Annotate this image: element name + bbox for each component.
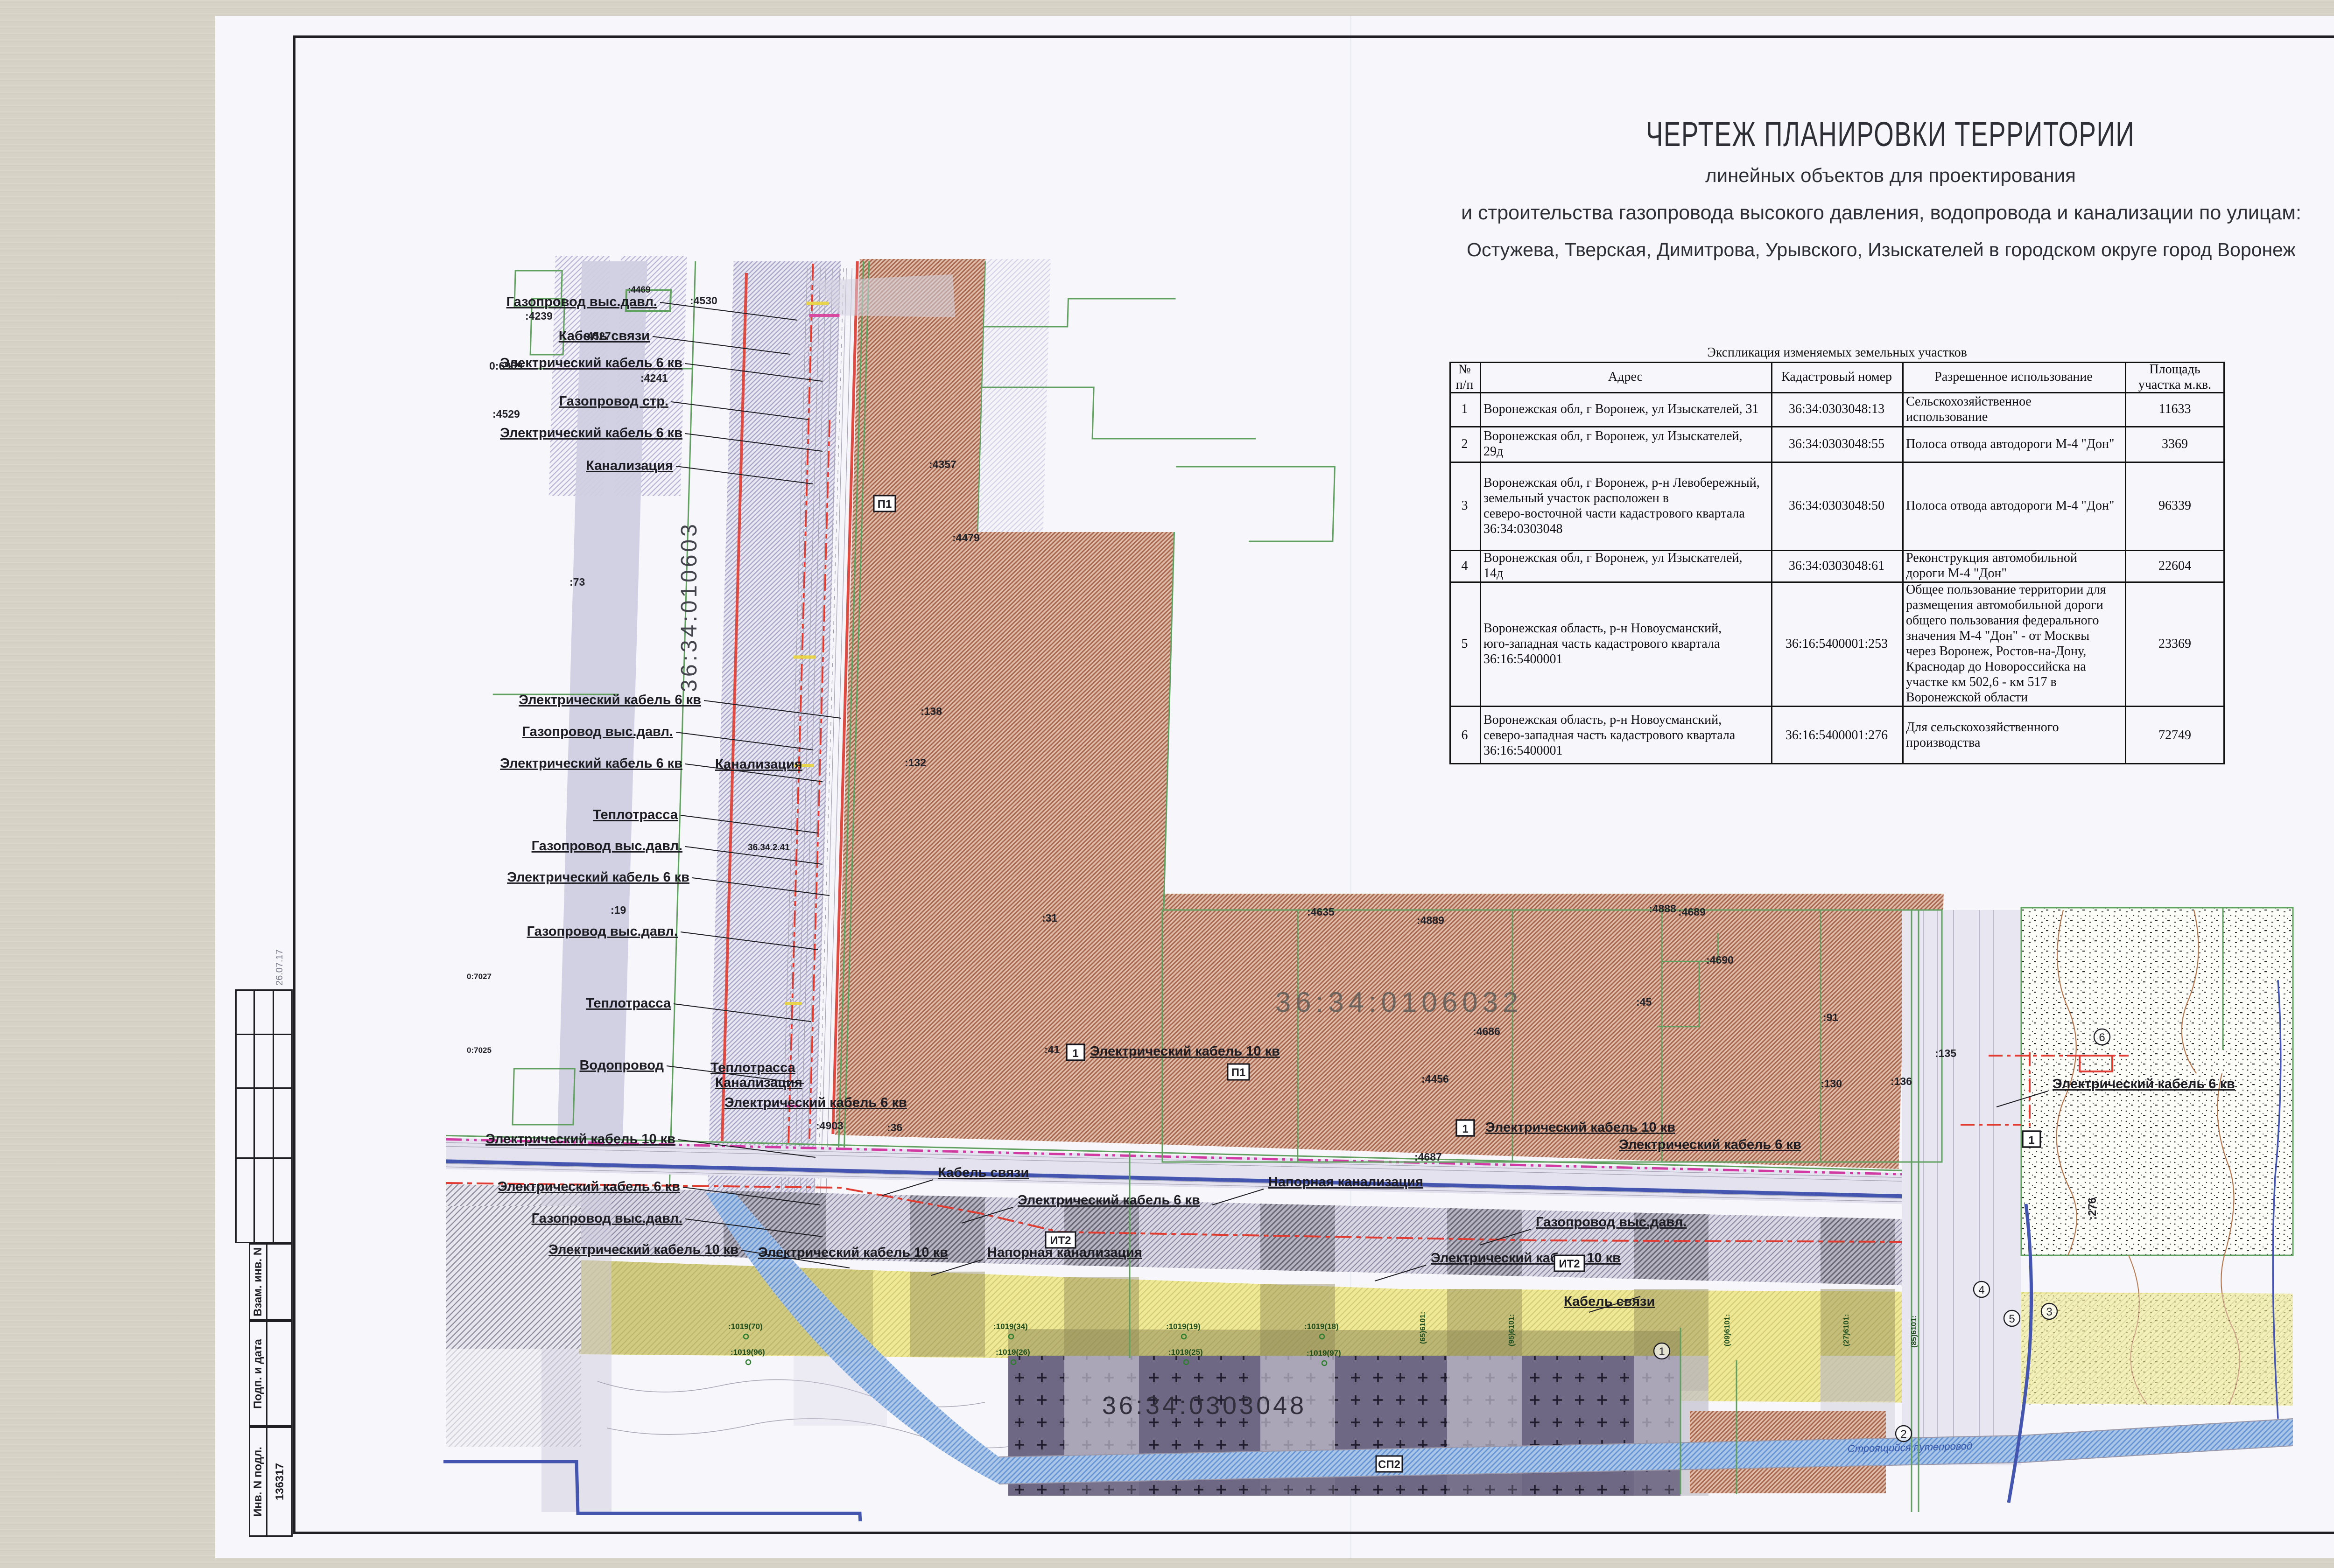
svg-text:0:7025: 0:7025 bbox=[467, 1046, 492, 1055]
svg-text::4686: :4686 bbox=[1473, 1025, 1500, 1037]
svg-text::4888: :4888 bbox=[1649, 903, 1676, 915]
svg-text:Электрический кабель 10 кв: Электрический кабель 10 кв bbox=[758, 1245, 948, 1260]
svg-text::73: :73 bbox=[569, 576, 585, 588]
svg-text:Теплотрасса: Теплотрасса bbox=[593, 807, 678, 822]
svg-text::4687: :4687 bbox=[1414, 1151, 1442, 1163]
svg-text:(65)6101:: (65)6101: bbox=[1419, 1312, 1427, 1344]
svg-text::4903: :4903 bbox=[816, 1120, 844, 1132]
svg-text:Теплотрасса: Теплотрасса bbox=[710, 1060, 796, 1075]
svg-text:Газопровод выс.давл.: Газопровод выс.давл. bbox=[532, 839, 682, 854]
svg-text:0:7027: 0:7027 bbox=[467, 972, 492, 981]
svg-text::91: :91 bbox=[1823, 1011, 1838, 1023]
svg-text:2: 2 bbox=[1900, 1428, 1906, 1441]
svg-text:Электрический кабель 6 кв: Электрический кабель 6 кв bbox=[500, 756, 682, 771]
svg-text::31: :31 bbox=[1042, 912, 1057, 924]
svg-text:Электрический кабель 10 кв: Электрический кабель 10 кв bbox=[485, 1132, 675, 1147]
svg-text:Электрический кабель 6 кв: Электрический кабель 6 кв bbox=[507, 870, 689, 885]
svg-text:Электрический кабель 6 кв: Электрический кабель 6 кв bbox=[498, 1179, 680, 1194]
svg-text:Газопровод выс.давл.: Газопровод выс.давл. bbox=[532, 1211, 682, 1226]
svg-text::36: :36 bbox=[887, 1121, 902, 1134]
svg-text::4239: :4239 bbox=[525, 310, 553, 322]
svg-text:(85)6101:: (85)6101: bbox=[1910, 1316, 1918, 1348]
svg-text:Электрический кабель 10 кв: Электрический кабель 10 кв bbox=[1485, 1120, 1675, 1135]
svg-text::4357: :4357 bbox=[929, 458, 956, 470]
svg-text:П1: П1 bbox=[1231, 1066, 1246, 1079]
svg-text::4530: :4530 bbox=[690, 294, 717, 307]
svg-text:Электрический кабель 6 кв: Электрический кабель 6 кв bbox=[519, 693, 701, 707]
svg-text:(09)6101:: (09)6101: bbox=[1723, 1314, 1731, 1346]
svg-text::1019(96): :1019(96) bbox=[731, 1348, 765, 1357]
svg-text:Газопровод стр.: Газопровод стр. bbox=[559, 394, 668, 409]
svg-text::276: :276 bbox=[2086, 1197, 2099, 1220]
svg-text:Канализация: Канализация bbox=[586, 458, 673, 473]
svg-text::4690: :4690 bbox=[1706, 954, 1734, 966]
svg-text::45: :45 bbox=[1636, 996, 1652, 1008]
svg-text::1019(34): :1019(34) bbox=[993, 1322, 1028, 1331]
svg-text::136: :136 bbox=[1891, 1075, 1912, 1087]
svg-text:(95)6101:: (95)6101: bbox=[1508, 1314, 1516, 1346]
svg-text:36:34:0303048: 36:34:0303048 bbox=[1102, 1392, 1307, 1420]
svg-text:1: 1 bbox=[1072, 1047, 1078, 1060]
svg-text:П1: П1 bbox=[878, 498, 892, 511]
svg-text::4689: :4689 bbox=[1678, 906, 1706, 918]
svg-text::4635: :4635 bbox=[1307, 906, 1335, 918]
svg-text::4241: :4241 bbox=[640, 372, 668, 384]
svg-text:ИТ2: ИТ2 bbox=[1050, 1234, 1071, 1247]
svg-text:0:6969: 0:6969 bbox=[489, 360, 523, 372]
svg-text::4456: :4456 bbox=[1421, 1073, 1449, 1085]
svg-text:Газопровод выс.давл.: Газопровод выс.давл. bbox=[522, 724, 673, 739]
svg-text:(27)6101:: (27)6101: bbox=[1842, 1314, 1850, 1346]
svg-text::135: :135 bbox=[1935, 1047, 1956, 1059]
svg-text:1: 1 bbox=[2028, 1134, 2034, 1147]
svg-text:36.34.2.41: 36.34.2.41 bbox=[748, 843, 790, 853]
svg-text:Электрический кабель 10 кв: Электрический кабель 10 кв bbox=[1431, 1251, 1621, 1266]
svg-text:1: 1 bbox=[1462, 1123, 1468, 1135]
svg-text::132: :132 bbox=[905, 756, 926, 769]
svg-text:Электрический кабель 6 кв: Электрический кабель 6 кв bbox=[724, 1095, 907, 1110]
svg-text:Электрический кабель 6 кв: Электрический кабель 6 кв bbox=[500, 426, 682, 441]
svg-text::1019(18): :1019(18) bbox=[1304, 1322, 1339, 1331]
svg-text::4469: :4469 bbox=[628, 285, 651, 295]
svg-text::130: :130 bbox=[1821, 1078, 1842, 1090]
svg-text:ИТ2: ИТ2 bbox=[1559, 1258, 1580, 1270]
svg-text:6: 6 bbox=[2099, 1031, 2105, 1044]
svg-text:Электрический кабель 10 кв: Электрический кабель 10 кв bbox=[1090, 1044, 1280, 1059]
svg-text::1019(19): :1019(19) bbox=[1166, 1322, 1201, 1331]
svg-text:Кабель связи: Кабель связи bbox=[938, 1165, 1029, 1180]
svg-text::1019(97): :1019(97) bbox=[1307, 1349, 1341, 1358]
svg-text:Газопровод выс.давл.: Газопровод выс.давл. bbox=[527, 924, 678, 939]
svg-text:Канализация: Канализация bbox=[715, 1075, 802, 1090]
svg-text:Напорная канализация: Напорная канализация bbox=[1268, 1175, 1423, 1190]
svg-text:Кабель связи: Кабель связи bbox=[1564, 1294, 1655, 1309]
svg-text::4889: :4889 bbox=[1417, 914, 1444, 926]
svg-text:36:34:0106032: 36:34:0106032 bbox=[1275, 987, 1523, 1018]
svg-text::4527: :4527 bbox=[583, 330, 611, 342]
svg-text:36:34:010603: 36:34:010603 bbox=[677, 521, 702, 692]
svg-text:Электрический кабель 6 кв: Электрический кабель 6 кв bbox=[1018, 1193, 1200, 1208]
svg-text:Теплотрасса: Теплотрасса bbox=[586, 996, 671, 1011]
svg-text:Водопровод: Водопровод bbox=[579, 1058, 664, 1073]
svg-text:Газопровод выс.давл.: Газопровод выс.давл. bbox=[506, 294, 657, 309]
svg-text:3: 3 bbox=[2046, 1306, 2052, 1318]
svg-text::138: :138 bbox=[921, 705, 942, 717]
svg-text:Электрический кабель 6 кв: Электрический кабель 6 кв bbox=[500, 356, 682, 371]
svg-text:Электрический кабель 6 кв: Электрический кабель 6 кв bbox=[2053, 1077, 2235, 1092]
svg-text:5: 5 bbox=[2009, 1313, 2015, 1325]
svg-text:1: 1 bbox=[1659, 1345, 1665, 1358]
svg-text::41: :41 bbox=[1044, 1043, 1060, 1056]
svg-text::1019(26): :1019(26) bbox=[996, 1348, 1030, 1357]
svg-text:Канализация: Канализация bbox=[715, 757, 802, 772]
svg-text:Электрический кабель 10 кв: Электрический кабель 10 кв bbox=[548, 1242, 738, 1257]
svg-text:Газопровод выс.давл.: Газопровод выс.давл. bbox=[1536, 1215, 1687, 1230]
svg-text:Электрический кабель 6 кв: Электрический кабель 6 кв bbox=[1619, 1137, 1801, 1152]
svg-text::19: :19 bbox=[611, 904, 626, 916]
svg-text::4529: :4529 bbox=[492, 408, 520, 420]
svg-text:4: 4 bbox=[1978, 1284, 1984, 1296]
svg-text::4479: :4479 bbox=[952, 532, 980, 544]
svg-text:СП2: СП2 bbox=[1378, 1458, 1400, 1471]
svg-text::1019(25): :1019(25) bbox=[1168, 1348, 1203, 1357]
svg-text::1019(70): :1019(70) bbox=[728, 1322, 763, 1331]
